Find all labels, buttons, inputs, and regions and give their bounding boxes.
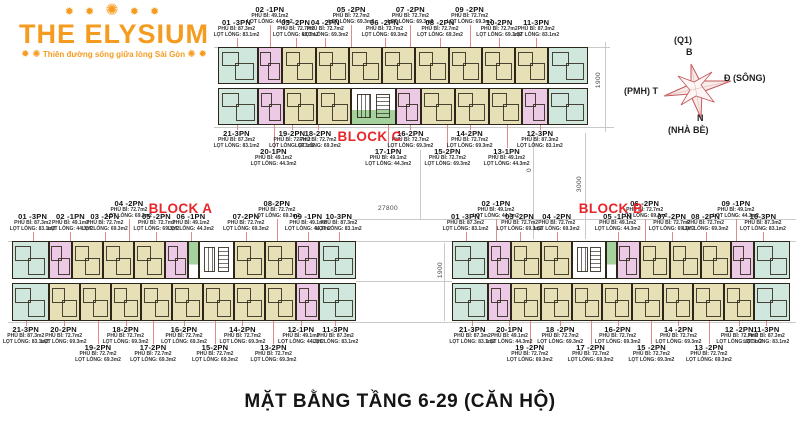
unit-area-net: LỌT LÒNG: 83.1m2 — [513, 33, 559, 39]
unit-area-net: LỌT LÒNG: 69.3m2 — [192, 358, 238, 364]
leader-line — [736, 219, 737, 241]
leader-line — [557, 232, 558, 241]
unit-area-net: LỌT LÒNG: 83.1m2 — [312, 340, 358, 346]
unit-area-net: LỌT LÒNG: 44.3m2 — [251, 162, 297, 168]
unit-label-b: 17 -2PNPHỦ BÌ: 72.7m2LỌT LÒNG: 69.3m2 — [568, 344, 614, 363]
apartment-unit-3pn — [12, 283, 49, 321]
unit-area-net: LỌT LÒNG: 44.3m2 — [595, 227, 641, 233]
apartment-unit-2pn — [541, 283, 571, 321]
leader-line — [410, 25, 411, 47]
apartment-unit-2pn — [421, 88, 455, 125]
unit-label-c: 17-1PNPHỦ BÌ: 49.1m2LỌT LÒNG: 44.3m2 — [365, 148, 411, 167]
leader-line — [351, 25, 352, 47]
apartment-unit-2pn — [349, 47, 382, 84]
apartment-unit-2pn — [632, 283, 662, 321]
labels-below-b: 21-3PNPHỦ BÌ: 87.3m2LỌT LÒNG: 83.1m220-1… — [452, 321, 790, 391]
leader-line — [273, 321, 274, 344]
unit-area-net: LỌT LÒNG: 83.1m2 — [517, 144, 563, 150]
apartment-unit-2pn — [172, 283, 203, 321]
leader-line — [706, 232, 707, 241]
unit-area-net: LỌT LÒNG: 83.1m2 — [443, 227, 489, 233]
lobby — [606, 241, 617, 279]
star-icon: ✺ ✹ — [187, 49, 207, 60]
unit-area-net: LỌT LÒNG: 69.3m2 — [302, 33, 348, 39]
unit-label-a: 10-3PNPHỦ BÌ: 87.3m2LỌT LÒNG: 83.1m2 — [316, 213, 362, 232]
apartment-unit-2pn — [134, 241, 165, 279]
apartment-unit-2pn — [103, 241, 134, 279]
leader-line — [105, 232, 106, 241]
unit-label-c: 15-2PNPHỦ BÌ: 72.7m2LỌT LÒNG: 69.3m2 — [424, 148, 470, 167]
unit-label-c: 12-3PNPHỦ BÌ: 87.3m2LỌT LÒNG: 83.1m2 — [517, 130, 563, 149]
apartment-unit-2pn — [316, 47, 349, 84]
leader-line — [215, 321, 216, 344]
building-strip-top — [218, 47, 588, 84]
unit-area-net: LỌT LÒNG: 83.1m2 — [214, 33, 260, 39]
unit-label-b: 16-2PNPHỦ BÌ: 72.7m2LỌT LÒNG: 69.3m2 — [595, 326, 641, 345]
building-c — [218, 47, 588, 125]
apartment-unit-1pn — [522, 88, 547, 125]
compass-label-south: N — [697, 113, 704, 123]
dimension-1900-b: 1900 — [437, 262, 444, 278]
leader-line — [339, 232, 340, 241]
apartment-unit-3pn — [754, 241, 790, 279]
apartment-unit-2pn — [415, 47, 448, 84]
leader-line — [507, 125, 508, 148]
apartment-unit-2pn — [640, 241, 670, 279]
compass-label-east: Đ (SÔNG) — [724, 73, 766, 83]
unit-area-net: LỌT LÒNG: 69.3m2 — [417, 33, 463, 39]
unit-label-a: 16-2PNPHỦ BÌ: 72.7m2LỌT LÒNG: 69.3m2 — [161, 326, 207, 345]
apartment-unit-2pn — [511, 241, 541, 279]
leader-line — [129, 219, 130, 241]
unit-area-net: LỌT LÒNG: 44.3m2 — [365, 162, 411, 168]
block-name-a: BLOCK A — [149, 201, 213, 216]
building-strip-top — [452, 241, 790, 279]
apartment-unit-2pn — [265, 283, 296, 321]
unit-area-net: LỌT LÒNG: 69.3m2 — [251, 358, 297, 364]
apartment-unit-1pn — [258, 88, 283, 125]
building-strip-top — [12, 241, 356, 279]
unit-label-a: 13-2PNPHỦ BÌ: 72.7m2LỌT LÒNG: 69.3m2 — [251, 344, 297, 363]
dimension-line — [605, 42, 606, 132]
leader-line — [325, 38, 326, 47]
apartment-unit-2pn — [141, 283, 172, 321]
unit-label-a: 15-2PNPHỦ BÌ: 72.7m2LỌT LÒNG: 69.3m2 — [192, 344, 238, 363]
elevator-core — [351, 88, 395, 125]
block-name-b: BLOCK B — [579, 201, 643, 216]
block-c: 01 -3PNPHỦ BÌ: 87.3m2LỌT LÒNG: 83.1m202 … — [218, 6, 588, 189]
building-a — [12, 241, 356, 321]
block-name-c: BLOCK C — [338, 129, 402, 144]
unit-label-b: 15 -2PNPHỦ BÌ: 72.7m2LỌT LÒNG: 69.3m2 — [628, 344, 674, 363]
unit-label-b: 11-3PNPHỦ BÌ: 87.3m2LỌT LÒNG: 83.1m2 — [743, 326, 789, 345]
leader-line — [763, 232, 764, 241]
dimension-line — [356, 281, 452, 282]
apartment-unit-2pn — [572, 283, 602, 321]
compass-label-q1: (Q1) — [674, 35, 692, 45]
unit-area-net: LỌT LÒNG: 44.3m2 — [168, 227, 214, 233]
leader-line — [499, 38, 500, 47]
unit-label-c: 20-1PNPHỦ BÌ: 49.1m2LỌT LÒNG: 44.3m2 — [251, 148, 297, 167]
leader-line — [645, 219, 646, 241]
apartment-unit-2pn — [265, 241, 296, 279]
elevator-core — [199, 241, 234, 279]
apartment-unit-2pn — [382, 47, 415, 84]
labels-above-c: 01 -3PNPHỦ BÌ: 87.3m2LỌT LÒNG: 83.1m202 … — [218, 6, 588, 47]
leader-line — [470, 25, 471, 47]
apartment-unit-2pn — [515, 47, 548, 84]
leader-line — [385, 38, 386, 47]
unit-area-net: LỌT LÒNG: 83.1m2 — [743, 340, 789, 346]
apartment-unit-2pn — [49, 283, 80, 321]
project-tagline: ✹ ✺ Thiên đường sống giữa lòng Sài Gòn ✺… — [8, 49, 220, 61]
apartment-unit-2pn — [455, 88, 489, 125]
compass-label-west: (PMH) T — [624, 86, 658, 96]
leader-line — [277, 219, 278, 241]
apartment-unit-1pn — [296, 241, 319, 279]
apartment-unit-1pn — [258, 47, 283, 84]
labels-above-a: 01 -3PNPHỦ BÌ: 87.3m2LỌT LÒNG: 83.1m202 … — [12, 200, 356, 241]
apartment-unit-3pn — [452, 283, 488, 321]
apartment-unit-3pn — [452, 241, 488, 279]
apartment-unit-2pn — [449, 47, 482, 84]
apartment-unit-1pn — [396, 88, 421, 125]
apartment-unit-2pn — [284, 88, 318, 125]
apartment-unit-3pn — [548, 88, 588, 125]
apartment-unit-3pn — [12, 241, 49, 279]
project-title: THE ELYSIUM — [8, 19, 220, 49]
elevator-core — [572, 241, 606, 279]
leader-line — [651, 321, 652, 344]
leader-line — [709, 321, 710, 344]
labels-below-c: 21-3PNPHỦ BÌ: 87.3m2LỌT LÒNG: 83.1m220-1… — [218, 125, 588, 189]
leader-line — [618, 232, 619, 241]
apartment-unit-2pn — [234, 283, 265, 321]
unit-label-c: 18-2PNPHỦ BÌ: 72.7m2LỌT LÒNG: 69.3m2 — [295, 130, 341, 149]
building-strip-bottom — [452, 283, 790, 321]
leader-line — [591, 321, 592, 344]
unit-area-net: LỌT LÒNG: 44.3m2 — [484, 162, 530, 168]
unit-area-net: LỌT LÒNG: 69.3m2 — [686, 358, 732, 364]
star-icon: ✹ ✺ — [21, 49, 41, 60]
unit-label-b: 13 -2PNPHỦ BÌ: 72.7m2LỌT LÒNG: 69.3m2 — [686, 344, 732, 363]
floor-plan-page: ✹ ✹ ✺ ✹ ✹ THE ELYSIUM ✹ ✺ Thiên đường số… — [0, 0, 800, 421]
apartment-unit-1pn — [488, 241, 511, 279]
apartment-unit-1pn — [731, 241, 754, 279]
unit-area-net: LỌT LÒNG: 69.3m2 — [82, 227, 128, 233]
plan-title: MẶT BẰNG TẦNG 6-29 (CĂN HỘ) — [244, 391, 555, 413]
apartment-unit-1pn — [488, 283, 511, 321]
apartment-unit-3pn — [218, 88, 258, 125]
leader-line — [70, 232, 71, 241]
unit-label-b: 10-3PNPHỦ BÌ: 87.3m2LỌT LÒNG: 83.1m2 — [740, 213, 786, 232]
apartment-unit-2pn — [111, 283, 142, 321]
compass-rose: (Q1) B Đ (SÔNG) (PMH) T N (NHÀ BÈ) — [612, 24, 792, 146]
unit-area-net: LỌT LÒNG: 69.3m2 — [628, 358, 674, 364]
apartment-unit-2pn — [80, 283, 111, 321]
leader-line — [520, 232, 521, 241]
unit-area-net: LỌT LÒNG: 69.3m2 — [507, 358, 553, 364]
apartment-unit-3pn — [218, 47, 258, 84]
unit-label-a: 20-2PNPHỦ BÌ: 72.7m2LỌT LÒNG: 69.3m2 — [41, 326, 87, 345]
apartment-unit-3pn — [754, 283, 790, 321]
apartment-unit-2pn — [234, 241, 265, 279]
unit-label-a: 11-3PNPHỦ BÌ: 87.3m2LỌT LÒNG: 83.1m2 — [312, 326, 358, 345]
unit-label-b: 04 -2PNPHỦ BÌ: 72.7m2LỌT LÒNG: 69.3m2 — [534, 213, 580, 232]
apartment-unit-2pn — [670, 241, 700, 279]
apartment-unit-2pn — [693, 283, 723, 321]
apartment-unit-2pn — [72, 241, 103, 279]
apartment-unit-1pn — [165, 241, 188, 279]
unit-area-net: LỌT LÒNG: 69.3m2 — [424, 162, 470, 168]
unit-area-net: LỌT LÒNG: 69.3m2 — [130, 358, 176, 364]
unit-area-net: LỌT LÒNG: 69.3m2 — [534, 227, 580, 233]
labels-below-a: 21-3PNPHỦ BÌ: 87.3m2LỌT LÒNG: 83.1m220-2… — [12, 321, 356, 391]
unit-label-c: 11-3PNPHỦ BÌ: 87.3m2LỌT LÒNG: 83.1m2 — [513, 19, 559, 38]
leader-line — [466, 232, 467, 241]
leader-line — [98, 321, 99, 344]
unit-label-a: 19-2PNPHỦ BÌ: 72.7m2LỌT LÒNG: 69.3m2 — [75, 344, 121, 363]
apartment-unit-2pn — [701, 241, 731, 279]
apartment-unit-2pn — [482, 47, 515, 84]
dimension-line — [444, 243, 445, 321]
apartment-unit-1pn — [296, 283, 319, 321]
apartment-unit-2pn — [203, 283, 234, 321]
dimension-1900-c: 1900 — [595, 72, 602, 88]
apartment-unit-3pn — [548, 47, 588, 84]
leader-line — [191, 232, 192, 241]
leader-line — [296, 38, 297, 47]
apartment-unit-2pn — [317, 88, 351, 125]
apartment-unit-2pn — [541, 241, 571, 279]
unit-label-b: 19 -2PNPHỦ BÌ: 72.7m2LỌT LÒNG: 69.3m2 — [507, 344, 553, 363]
block-a: 01 -3PNPHỦ BÌ: 87.3m2LỌT LÒNG: 83.1m202 … — [12, 200, 356, 391]
leader-line — [440, 38, 441, 47]
unit-area-net: LỌT LÒNG: 69.3m2 — [295, 144, 341, 150]
leader-line — [536, 38, 537, 47]
unit-area-net: LỌT LÒNG: 69.3m2 — [362, 33, 408, 39]
unit-label-a: 17-2PNPHỦ BÌ: 72.7m2LỌT LÒNG: 69.3m2 — [130, 344, 176, 363]
building-strip-bottom — [218, 88, 588, 125]
building-b — [452, 241, 790, 321]
leader-line — [156, 232, 157, 241]
apartment-unit-2pn — [663, 283, 693, 321]
unit-label-c: 14-2PNPHỦ BÌ: 72.7m2LỌT LÒNG: 69.3m2 — [447, 130, 493, 149]
unit-area-net: LỌT LÒNG: 83.1m2 — [316, 227, 362, 233]
unit-label-c: 13-1PNPHỦ BÌ: 49.1m2LỌT LÒNG: 44.3m2 — [484, 148, 530, 167]
unit-label-c: 21-3PNPHỦ BÌ: 87.3m2LỌT LÒNG: 83.1m2 — [214, 130, 260, 149]
apartment-unit-3pn — [319, 283, 356, 321]
apartment-unit-1pn — [49, 241, 72, 279]
block-b: 01 -3PNPHỦ BÌ: 87.3m2LỌT LÒNG: 83.1m202 … — [452, 200, 790, 391]
leader-line — [672, 232, 673, 241]
unit-area-net: LỌT LÒNG: 69.3m2 — [75, 358, 121, 364]
compass-label-nhabe: (NHÀ BÈ) — [668, 125, 709, 135]
apartment-unit-2pn — [489, 88, 523, 125]
labels-above-b: 01 -3PNPHỦ BÌ: 87.3m2LỌT LÒNG: 83.1m202 … — [452, 200, 790, 241]
project-logo: ✹ ✹ ✺ ✹ ✹ THE ELYSIUM ✹ ✺ Thiên đường số… — [8, 4, 220, 61]
unit-area-net: LỌT LÒNG: 69.3m2 — [223, 227, 269, 233]
unit-area-net: LỌT LÒNG: 83.1m2 — [740, 227, 786, 233]
leader-line — [237, 38, 238, 47]
leader-line — [246, 232, 247, 241]
unit-label-a: 14-2PNPHỦ BÌ: 72.7m2LỌT LÒNG: 69.3m2 — [220, 326, 266, 345]
apartment-unit-2pn — [511, 283, 541, 321]
leader-line — [308, 232, 309, 241]
apartment-unit-1pn — [617, 241, 640, 279]
logo-stars-icon: ✹ ✹ ✺ ✹ ✹ — [8, 4, 220, 19]
leader-line — [270, 25, 271, 47]
apartment-unit-2pn — [602, 283, 632, 321]
compass-label-north: B — [686, 47, 693, 57]
apartment-unit-3pn — [319, 241, 356, 279]
leader-line — [153, 321, 154, 344]
building-strip-bottom — [12, 283, 356, 321]
leader-line — [33, 232, 34, 241]
unit-area-net: LỌT LÒNG: 69.3m2 — [683, 227, 729, 233]
apartment-unit-2pn — [724, 283, 754, 321]
unit-area-net: LỌT LÒNG: 69.3m2 — [568, 358, 614, 364]
dimension-27800: 27800 — [378, 205, 398, 212]
apartment-unit-2pn — [282, 47, 315, 84]
lobby — [188, 241, 199, 279]
